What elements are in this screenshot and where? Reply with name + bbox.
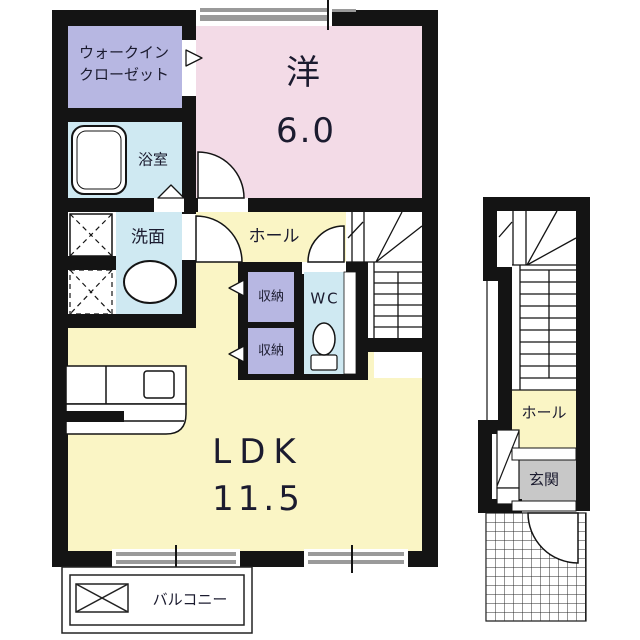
window-bottom-right: [304, 545, 408, 573]
window-top: [196, 0, 356, 30]
ldk-size: 11.5: [212, 482, 304, 516]
floor-plan-drawing: [0, 0, 640, 640]
wc-side-panel: [344, 272, 356, 374]
western-room-size: 6.0: [276, 114, 336, 148]
toilet-icon: [311, 323, 337, 370]
void-box-bottom: [70, 270, 112, 314]
balcony-hatch-icon: [76, 584, 128, 612]
washroom-label: 洗面: [131, 230, 165, 247]
ldk-label: LDK: [212, 435, 303, 469]
storage-bottom-label: 収納: [258, 345, 284, 358]
kitchen-counter-icon: [52, 366, 186, 434]
bathroom-label: 浴室: [138, 153, 168, 168]
hall-step-strip: [512, 448, 576, 460]
washbasin-icon: [124, 261, 176, 303]
hall-1f-label: ホール: [521, 406, 566, 421]
walk-in-closet-label-line2: クローゼット: [79, 68, 169, 83]
balcony-label: バルコニー: [153, 593, 228, 608]
storage-top-label: 収納: [258, 291, 284, 304]
western-room-label: 洋: [286, 56, 320, 90]
stairs-landing: [374, 352, 422, 378]
void-box-top: [70, 214, 112, 256]
ldk-area-left: [68, 328, 196, 551]
kitchen-partition: [52, 411, 124, 422]
floor-plan: ウォークイン クローゼット 洋 6.0 浴室 洗面 ホール 収納 収納 WC L…: [0, 0, 640, 640]
porch: [486, 513, 586, 621]
bathtub-icon: [72, 126, 126, 194]
entrance-cabinet-icon: [497, 430, 519, 504]
entrance-label: 玄関: [529, 473, 559, 488]
entrance-threshold: [512, 501, 576, 511]
kitchen-sink-icon: [144, 371, 174, 398]
walk-in-closet-label-line1: ウォークイン: [79, 46, 169, 61]
wc-label: WC: [310, 292, 339, 307]
hall-2f-label: ホール: [249, 229, 300, 246]
